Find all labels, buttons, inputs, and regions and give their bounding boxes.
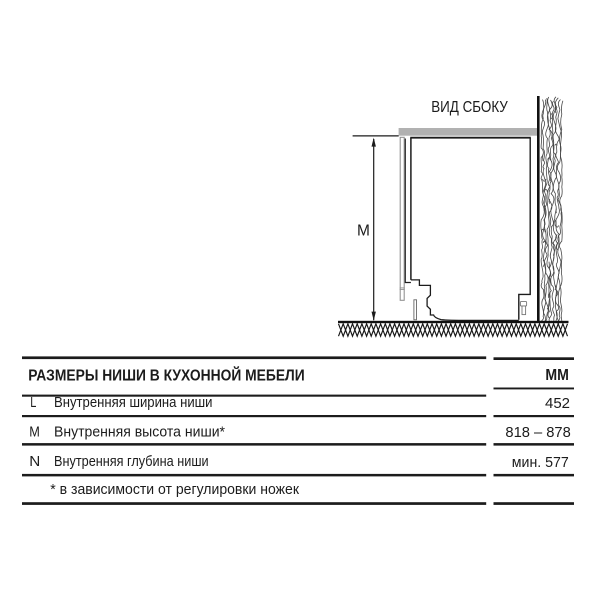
svg-text:452: 452 (545, 395, 570, 412)
svg-text:М: М (357, 223, 370, 240)
svg-text:ММ: ММ (545, 367, 569, 384)
svg-text:мин. 577: мин. 577 (512, 454, 569, 471)
svg-text:РАЗМЕРЫ НИШИ В КУХОННОЙ МЕБЕЛИ: РАЗМЕРЫ НИШИ В КУХОННОЙ МЕБЕЛИ (28, 365, 305, 384)
svg-text:* в зависимости от регулировки: * в зависимости от регулировки ножек (50, 481, 299, 498)
svg-text:L: L (30, 394, 36, 411)
svg-text:ВИД СБОКУ: ВИД СБОКУ (431, 99, 508, 116)
svg-text:Внутренняя глубина ниши: Внутренняя глубина ниши (54, 453, 209, 470)
svg-text:М: М (29, 424, 40, 441)
svg-text:Внутренняя ширина ниши: Внутренняя ширина ниши (54, 394, 213, 411)
svg-text:818 – 878: 818 – 878 (505, 424, 570, 441)
svg-text:N: N (29, 453, 40, 470)
svg-text:Внутренняя высота ниши*: Внутренняя высота ниши* (54, 424, 225, 441)
